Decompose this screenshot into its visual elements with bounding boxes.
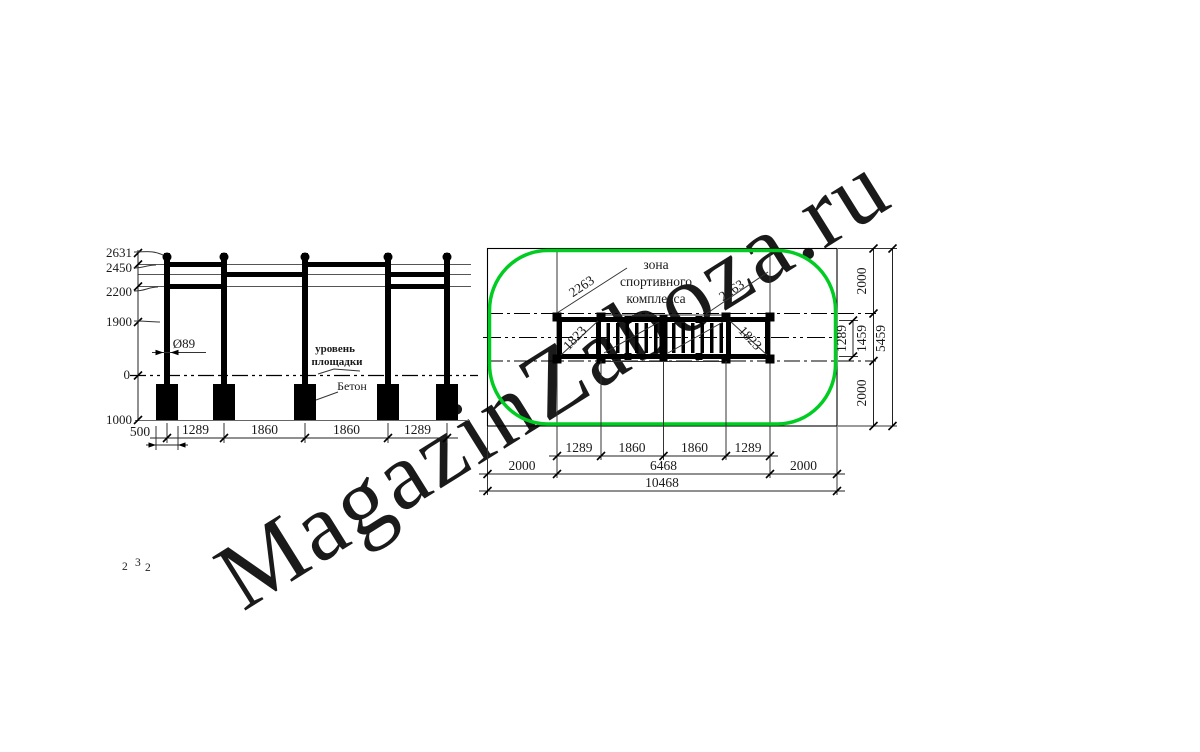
height-label-2450: 2450 <box>106 260 132 275</box>
height-label-0: 0 <box>124 367 131 382</box>
height-label-2631: 2631 <box>106 245 132 260</box>
diameter-callout: Ø89 <box>152 336 206 355</box>
height-dimension: 2631 2450 2200 1900 0 1000 <box>106 245 163 427</box>
plan-dim-1860-right: 1860 <box>681 440 708 455</box>
right-dim-bottom-2000: 2000 <box>854 379 869 406</box>
drawing-page: MagazinZaboza.ru <box>0 0 1200 752</box>
plan-dim-1289-left: 1289 <box>566 440 593 455</box>
height-label-2200: 2200 <box>106 284 132 299</box>
corner-note: 2 3 2 <box>122 557 151 574</box>
corner-note-1: 2 <box>122 561 128 573</box>
drawing-canvas: MagazinZaboza.ru <box>0 0 1200 752</box>
corner-note-3: 2 <box>145 562 151 574</box>
concrete-label: Бетон <box>316 379 367 400</box>
center-post <box>660 315 668 361</box>
level-label-line2: площадки <box>311 356 363 368</box>
plan-dim-10468: 10468 <box>645 475 679 490</box>
right-dimensions: 2000 1289 1459 2000 5459 <box>834 245 897 431</box>
concrete-label-text: Бетон <box>337 379 367 393</box>
plan-dim-6468: 6468 <box>650 458 677 473</box>
corner-note-2: 3 <box>135 557 141 569</box>
level-label-line1: уровень <box>315 343 355 355</box>
height-label-1900: 1900 <box>106 314 132 329</box>
plan-dim-1860-left: 1860 <box>619 440 646 455</box>
foundation-width-label: 500 <box>130 424 151 439</box>
zone-label-line3: комплекса <box>626 291 685 306</box>
span-label-2: 1860 <box>251 422 278 437</box>
diameter-label: Ø89 <box>173 336 195 351</box>
right-dim-1289: 1289 <box>834 325 849 352</box>
span-label-4: 1289 <box>404 422 431 437</box>
span-label-1: 1289 <box>182 422 209 437</box>
span-label-3: 1860 <box>333 422 360 437</box>
ground-level-label: уровень площадки <box>311 343 363 374</box>
foundation-width-dimension: 500 <box>130 424 188 450</box>
plan-dim-2000-right: 2000 <box>790 458 817 473</box>
plan-dim-2000-left: 2000 <box>509 458 536 473</box>
right-dim-5459: 5459 <box>873 325 888 352</box>
right-dim-1459: 1459 <box>854 325 869 352</box>
right-dim-top-2000: 2000 <box>854 267 869 294</box>
zone-label-line2: спортивного <box>620 274 692 289</box>
posts <box>163 253 452 419</box>
plan-dim-1289-right: 1289 <box>735 440 762 455</box>
zone-label-line1: зона <box>643 257 668 272</box>
height-label-1000: 1000 <box>106 412 132 427</box>
